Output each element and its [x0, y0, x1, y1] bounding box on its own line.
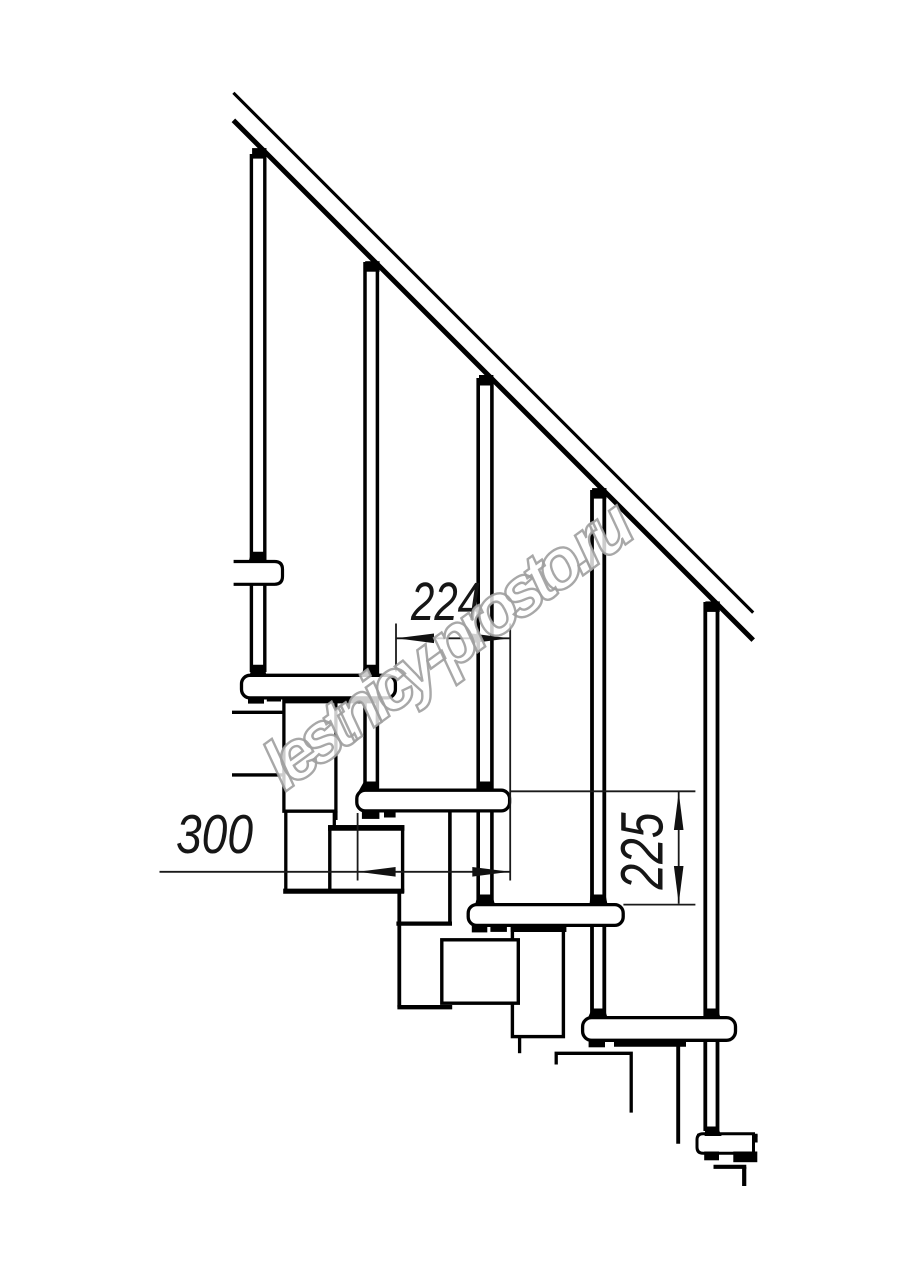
svg-text:300: 300 — [176, 803, 253, 865]
svg-text:225: 225 — [609, 812, 676, 890]
